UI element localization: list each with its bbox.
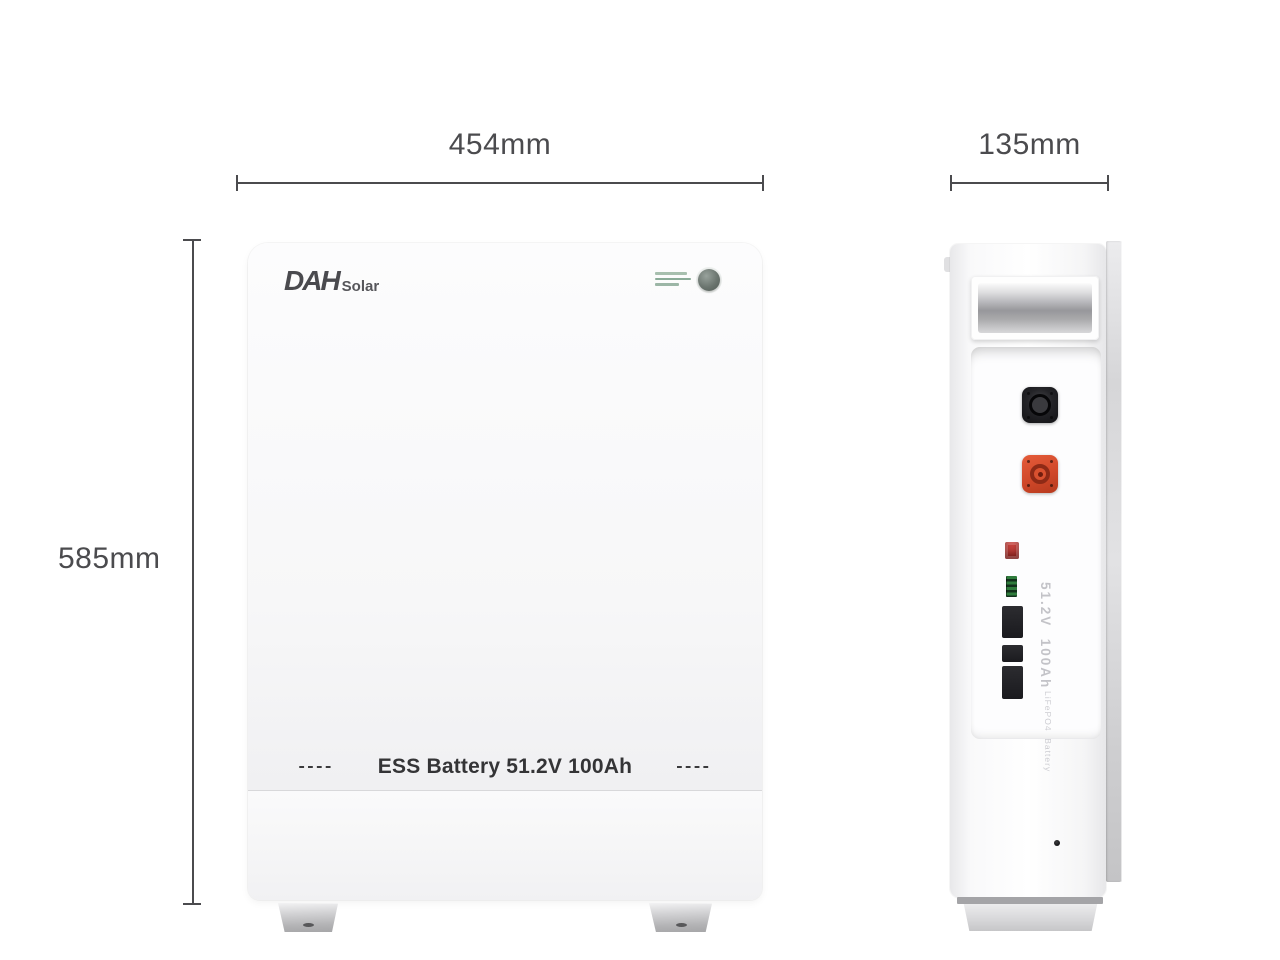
brand-logo: DAH Solar — [284, 267, 379, 295]
carry-handle — [971, 276, 1099, 340]
handle-recess — [978, 283, 1092, 333]
dimension-line-height — [192, 240, 194, 905]
foot-bolt-hole — [303, 923, 314, 927]
connector-screws — [1027, 460, 1030, 463]
certification-print-icon — [655, 272, 693, 286]
dc-connector-black — [1022, 387, 1058, 423]
dimension-line-depth — [951, 182, 1108, 184]
dimension-label-width: 454mm — [237, 128, 763, 162]
side-spec-text: 51.2V 100Ah LiFePO4 Battery — [1038, 582, 1053, 742]
power-button-icon — [698, 269, 720, 291]
print-line — [655, 278, 691, 281]
connector-pin — [1038, 472, 1043, 477]
foot-bolt-hole — [676, 923, 687, 927]
dimension-tick — [236, 175, 238, 191]
screw-hole-icon — [1054, 840, 1060, 846]
side-foot — [961, 904, 1100, 931]
dimension-line-width — [237, 182, 763, 184]
spec-chemistry: LiFePO4 Battery — [1043, 691, 1053, 772]
dimension-label-height: 585mm — [58, 542, 180, 576]
dimension-label-depth: 135mm — [951, 128, 1108, 162]
print-line — [655, 283, 679, 286]
connector-screws — [1027, 392, 1030, 395]
battery-side-view: 51.2V 100Ah LiFePO4 Battery — [950, 244, 1106, 898]
comm-terminal-block — [1006, 576, 1017, 597]
product-dimension-diagram: 454mm 135mm 585mm DAH Solar ---- ESS Bat — [0, 0, 1280, 960]
connector-socket — [1029, 394, 1051, 416]
side-base-strip — [957, 897, 1103, 904]
brand-logo-solar: Solar — [342, 279, 380, 294]
spec-voltage-capacity: 51.2V 100Ah — [1038, 582, 1053, 689]
label-dashes-right: ---- — [676, 758, 711, 777]
front-base-section — [248, 791, 762, 900]
brand-logo-dah: DAH — [284, 267, 339, 295]
dc-connector-orange — [1022, 455, 1058, 493]
print-line — [655, 272, 687, 275]
battery-front-view: DAH Solar ---- ESS Battery 51.2V 100Ah -… — [248, 243, 762, 900]
dimension-tick — [762, 175, 764, 191]
dimension-tick — [1107, 175, 1109, 191]
terminal-cover — [1002, 666, 1023, 699]
terminal-cover — [1002, 645, 1023, 662]
label-dashes-left: ---- — [298, 758, 333, 777]
terminal-cover — [1002, 606, 1023, 638]
front-foot-left — [278, 903, 338, 932]
wall-mount-flange — [1106, 241, 1122, 882]
product-label: ESS Battery 51.2V 100Ah — [378, 755, 632, 779]
product-label-row: ---- ESS Battery 51.2V 100Ah ---- — [248, 748, 762, 786]
dimension-tick — [183, 903, 201, 905]
dimension-tick — [950, 175, 952, 191]
dimension-tick — [183, 239, 201, 241]
front-foot-right — [649, 903, 712, 932]
breaker-switch-icon — [1005, 542, 1019, 559]
